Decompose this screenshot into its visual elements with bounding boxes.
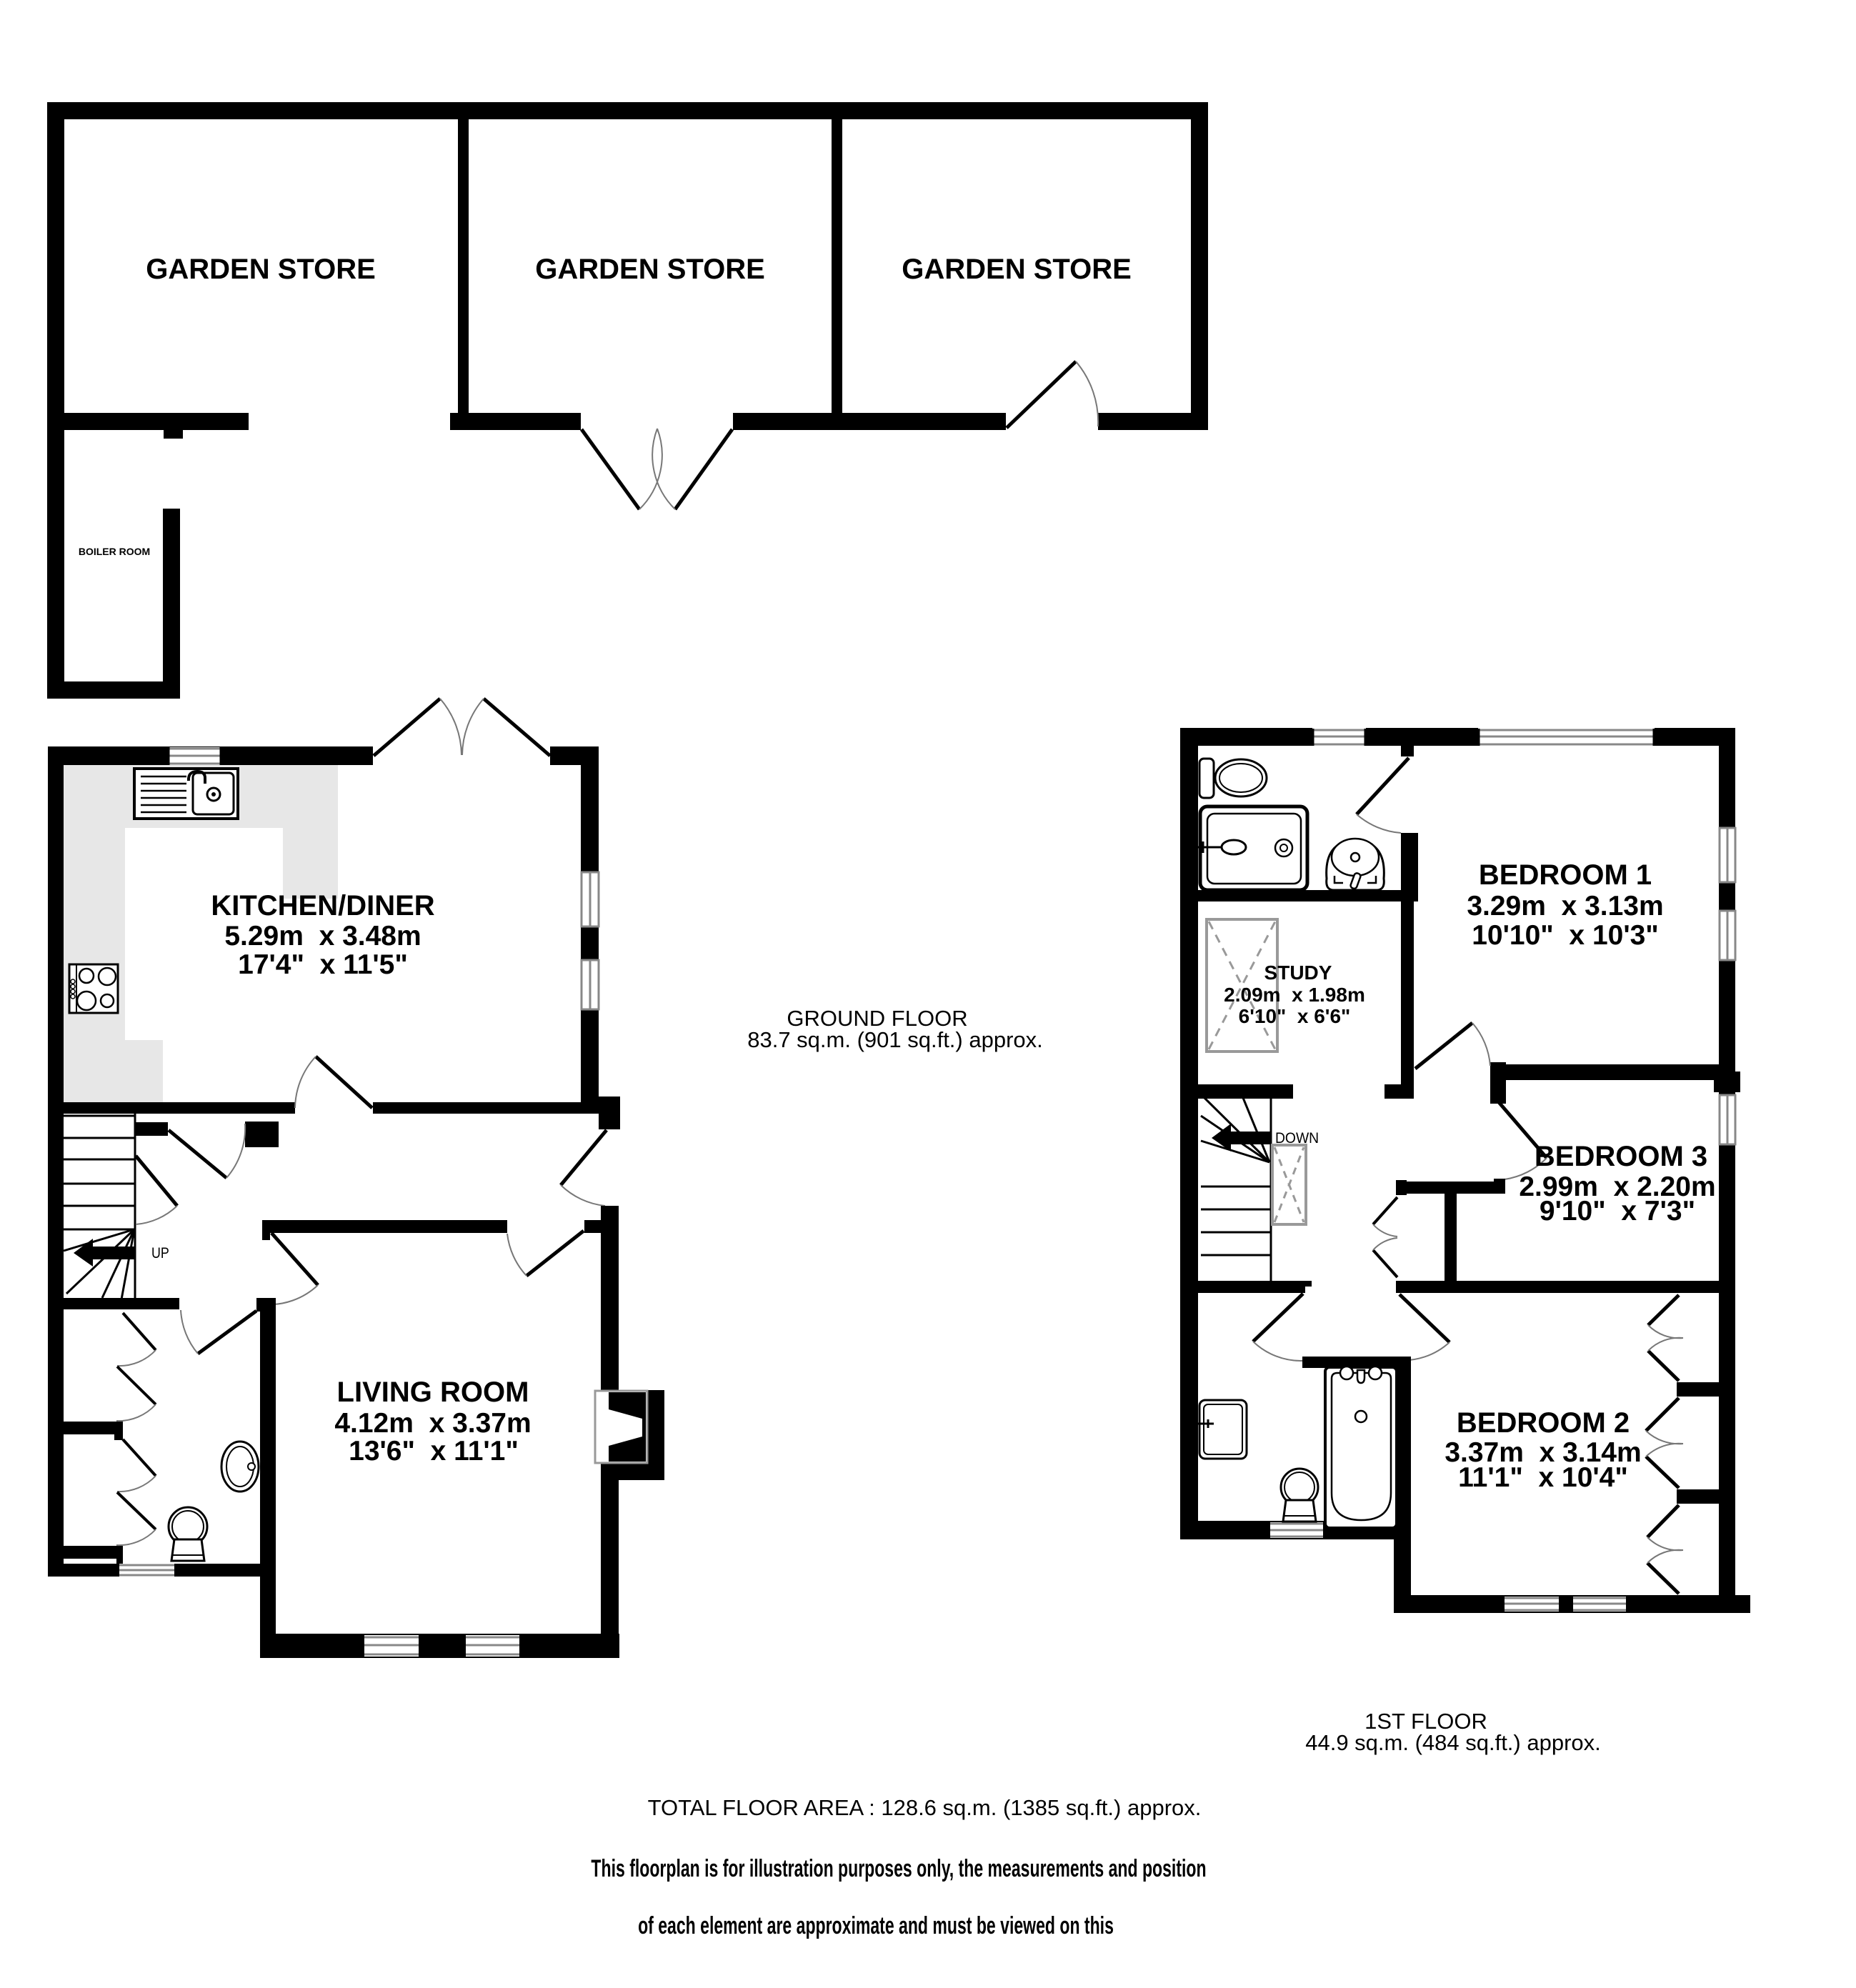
svg-text:GARDEN STORE: GARDEN STORE xyxy=(902,254,1132,285)
svg-text:44.9 sq.m. (484 sq.ft.) approx: 44.9 sq.m. (484 sq.ft.) approx. xyxy=(1305,1730,1601,1755)
svg-text:5.29m x 3.48m: 5.29m x 3.48m xyxy=(224,921,421,951)
svg-text:KITCHEN/DINER: KITCHEN/DINER xyxy=(211,890,434,921)
svg-text:GARDEN STORE: GARDEN STORE xyxy=(146,254,376,285)
svg-text:LIVING ROOM: LIVING ROOM xyxy=(337,1377,529,1408)
svg-text:STUDY: STUDY xyxy=(1264,961,1332,984)
svg-text:4.12m x 3.37m: 4.12m x 3.37m xyxy=(334,1408,531,1439)
svg-text:83.7 sq.m. (901 sq.ft.) approx: 83.7 sq.m. (901 sq.ft.) approx. xyxy=(747,1027,1043,1052)
svg-text:17'4" x 11'5": 17'4" x 11'5" xyxy=(238,949,408,980)
svg-text:This floorplan is for illustra: This floorplan is for illustration purpo… xyxy=(591,1856,1206,1882)
svg-text:13'6" x 11'1": 13'6" x 11'1" xyxy=(349,1436,519,1467)
svg-text:BEDROOM 1: BEDROOM 1 xyxy=(1479,859,1652,891)
svg-text:11'1" x 10'4": 11'1" x 10'4" xyxy=(1458,1462,1628,1493)
svg-text:6'10" x 6'6": 6'10" x 6'6" xyxy=(1239,1005,1351,1027)
svg-text:9'10" x 7'3": 9'10" x 7'3" xyxy=(1540,1196,1695,1227)
svg-text:3.29m x 3.13m: 3.29m x 3.13m xyxy=(1467,891,1663,921)
svg-text:TOTAL FLOOR AREA : 128.6 sq.m.: TOTAL FLOOR AREA : 128.6 sq.m. (1385 sq.… xyxy=(648,1795,1202,1820)
svg-text:BEDROOM 3: BEDROOM 3 xyxy=(1535,1141,1707,1172)
svg-text:BEDROOM 2: BEDROOM 2 xyxy=(1457,1407,1630,1439)
svg-text:UP: UP xyxy=(151,1245,169,1262)
svg-text:GARDEN STORE: GARDEN STORE xyxy=(535,254,765,285)
svg-text:BOILER ROOM: BOILER ROOM xyxy=(79,546,150,557)
svg-text:2.09m x 1.98m: 2.09m x 1.98m xyxy=(1224,984,1365,1006)
svg-text:10'10" x 10'3": 10'10" x 10'3" xyxy=(1472,920,1659,951)
svg-text:of each element are approximat: of each element are approximate and must… xyxy=(638,1913,1114,1939)
